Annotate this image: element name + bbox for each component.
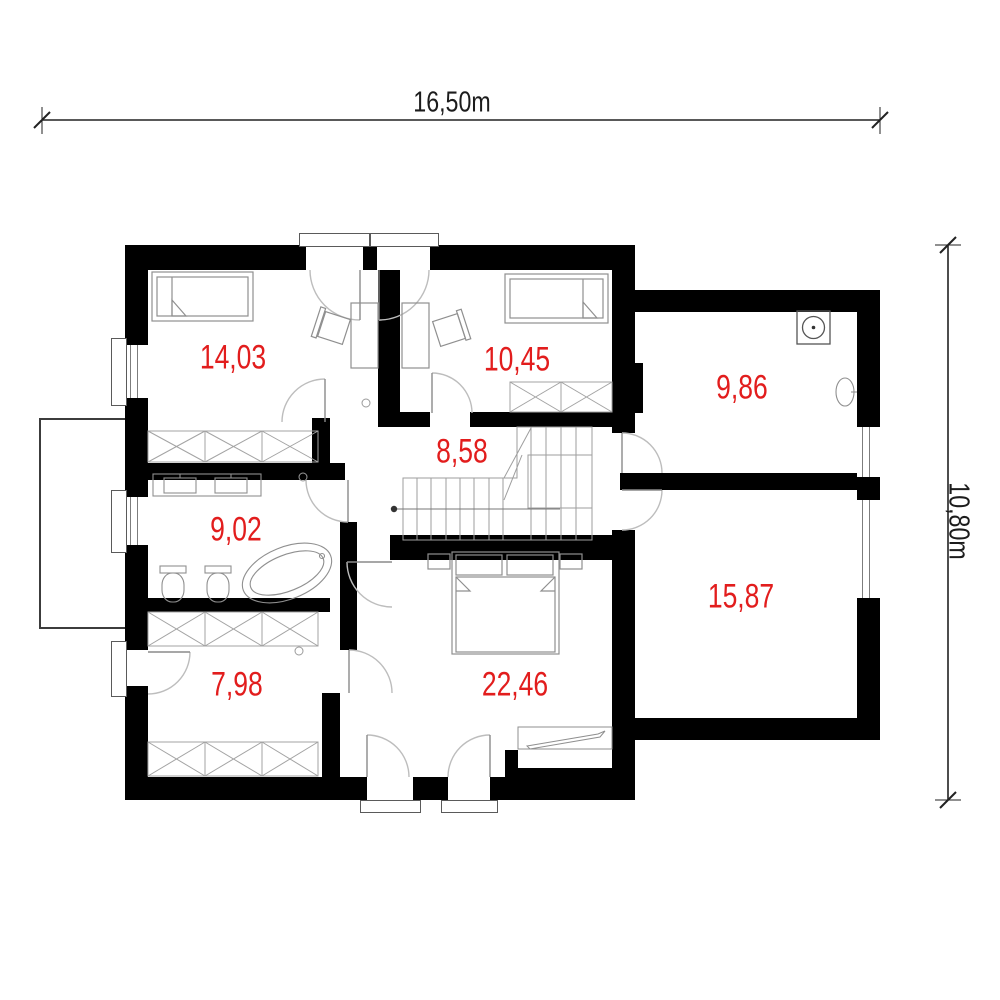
wall-segment — [340, 522, 357, 650]
bidet-icon — [205, 566, 231, 602]
dimension-width-label: 16,50m — [413, 87, 490, 120]
wall-segment — [378, 412, 430, 427]
room-area-label: 15,87 — [708, 578, 774, 617]
door-stop-icon — [295, 399, 370, 655]
stairs-icon — [391, 427, 592, 540]
wardrobe-icon — [510, 382, 612, 412]
room-area-label: 8,58 — [436, 433, 488, 472]
window-sill — [441, 800, 498, 813]
wall-segment — [505, 768, 612, 777]
room-area-label: 9,02 — [210, 511, 262, 550]
window-icon — [130, 345, 131, 398]
window-sill — [360, 800, 421, 813]
window-icon — [869, 427, 870, 477]
sink-icon — [836, 378, 857, 406]
window-sill — [111, 490, 127, 553]
window-sill — [370, 233, 439, 247]
floor-plan: 16,50m 10,80m 14,03 10,45 9,86 8,58 9,02… — [0, 0, 1000, 1000]
window-icon — [862, 427, 863, 477]
window-sill — [111, 641, 127, 697]
dimension-height-label: 10,80m — [942, 482, 975, 559]
wall-segment — [390, 535, 612, 560]
window-icon — [862, 500, 863, 598]
wardrobe-icon — [148, 431, 318, 462]
room-area-label: 14,03 — [200, 339, 266, 378]
balcony-door-opening — [448, 777, 490, 800]
wall-segment — [635, 718, 880, 740]
symbols-layer — [0, 0, 1000, 1000]
wall-segment — [145, 598, 330, 612]
washing-machine-icon — [797, 311, 830, 344]
wall-segment — [470, 412, 612, 427]
wall-segment — [378, 270, 400, 418]
wall-segment — [635, 290, 880, 312]
wall-segment — [312, 418, 330, 478]
window-icon — [137, 497, 138, 545]
window-icon — [137, 345, 138, 398]
room-area-label: 7,98 — [211, 666, 263, 705]
window-sill — [111, 338, 127, 406]
room-area-label: 9,86 — [716, 369, 768, 408]
balcony-door-opening — [367, 777, 413, 800]
wall-segment — [322, 693, 340, 777]
wall-segment — [620, 473, 857, 490]
room-area-label: 10,45 — [484, 341, 550, 380]
window-icon — [869, 500, 870, 598]
toilet-icon — [160, 566, 186, 602]
wardrobe-icon — [148, 742, 318, 776]
balcony-door-opening — [306, 245, 363, 270]
window-icon — [130, 497, 131, 545]
double-bed-icon — [428, 552, 582, 654]
wardrobe-icon — [148, 612, 318, 646]
wall-segment — [612, 363, 643, 413]
radiator-icon — [518, 727, 612, 749]
window-sill — [299, 233, 370, 247]
bed-icon — [505, 274, 608, 323]
balcony-door-opening — [377, 245, 430, 270]
bed-icon — [152, 272, 253, 321]
door-opening — [125, 650, 148, 686]
room-area-label: 22,46 — [482, 666, 548, 705]
